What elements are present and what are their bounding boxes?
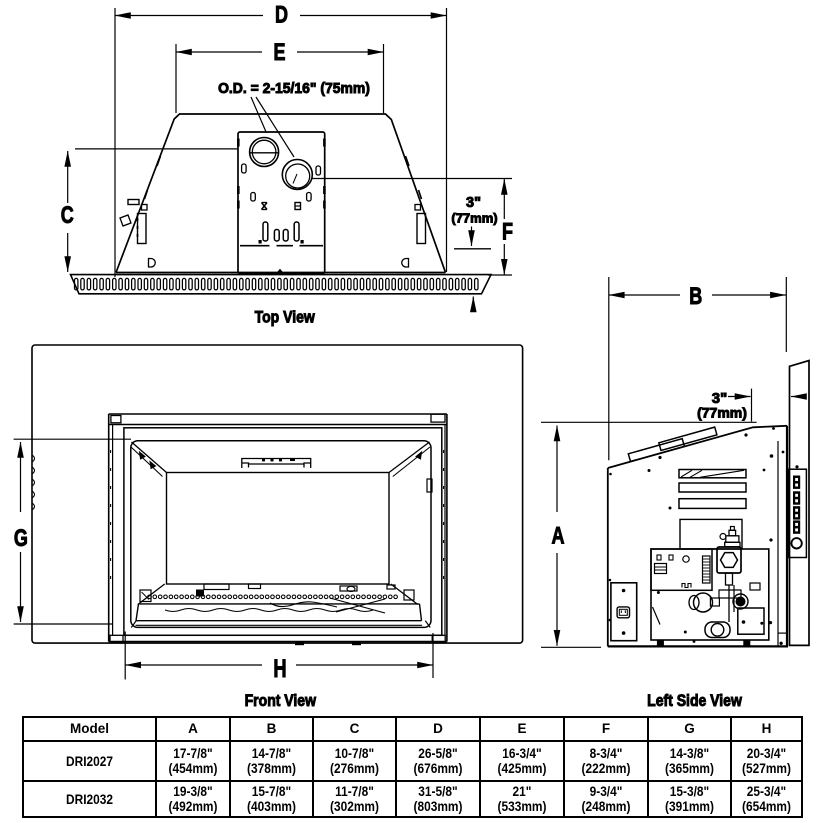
svg-text:F: F <box>502 219 513 245</box>
svg-text:(77mm): (77mm) <box>697 405 747 421</box>
svg-text:B: B <box>689 284 702 310</box>
svg-text:H: H <box>273 654 286 683</box>
svg-text:E: E <box>273 40 285 66</box>
svg-text:(77mm): (77mm) <box>451 211 497 226</box>
svg-text:Front View: Front View <box>245 692 316 710</box>
svg-text:Top View: Top View <box>255 308 315 326</box>
svg-text:O.D. = 2-15/16" (75mm): O.D. = 2-15/16" (75mm) <box>218 81 370 98</box>
svg-text:D: D <box>275 2 288 28</box>
svg-text:Left Side View: Left Side View <box>647 692 742 710</box>
svg-text:C: C <box>61 203 74 229</box>
svg-text:3": 3" <box>466 195 481 211</box>
svg-text:G: G <box>14 526 28 552</box>
svg-text:A: A <box>552 523 565 549</box>
